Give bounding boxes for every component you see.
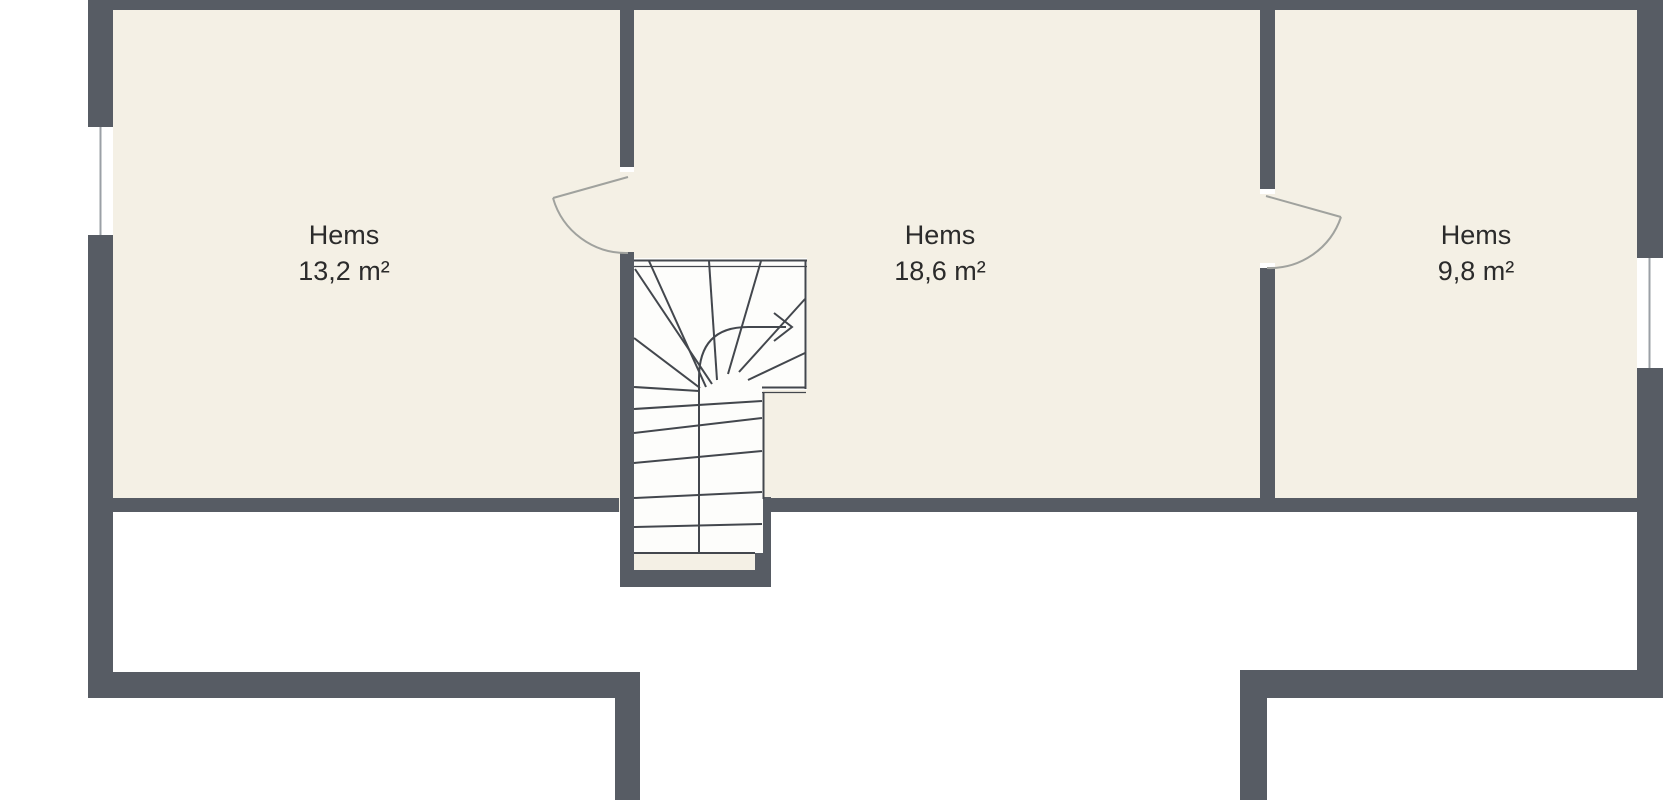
room-name-right: Hems: [1441, 220, 1512, 250]
stairwell-wall-bottom: [620, 570, 771, 587]
door-jamb-cap: [1260, 189, 1275, 194]
wall-rooms-bottom-right-segment: [770, 498, 1637, 512]
wall-top: [88, 0, 1663, 10]
room-area-middle: 18,6 m²: [894, 256, 986, 286]
wall-bottom-left-vertical-return: [615, 672, 640, 800]
room-area-left: 13,2 m²: [298, 256, 390, 286]
wall-divider-middle-right-lower: [1260, 268, 1275, 498]
wall-divider-left-middle: [620, 0, 634, 172]
floor-plan-canvas: Hems 13,2 m² Hems 18,6 m² Hems 9,8 m²: [0, 0, 1670, 800]
wall-left-exterior: [88, 0, 113, 698]
room-name-left: Hems: [309, 220, 380, 250]
wall-bottom-right-horizontal: [1240, 670, 1663, 698]
wall-rooms-bottom-left-segment: [113, 498, 619, 512]
wall-bottom-right-vertical-return: [1240, 670, 1267, 800]
room-area-right: 9,8 m²: [1438, 256, 1515, 286]
stairwell-wall-left: [620, 252, 634, 587]
floor-plan-drawing: Hems 13,2 m² Hems 18,6 m² Hems 9,8 m²: [0, 0, 1670, 800]
wall-divider-middle-right-upper: [1260, 0, 1275, 190]
wall-bottom-left-horizontal: [88, 672, 640, 698]
door-jamb-cap: [620, 167, 634, 172]
room-name-middle: Hems: [905, 220, 976, 250]
stair-landing-strip: [634, 553, 755, 570]
